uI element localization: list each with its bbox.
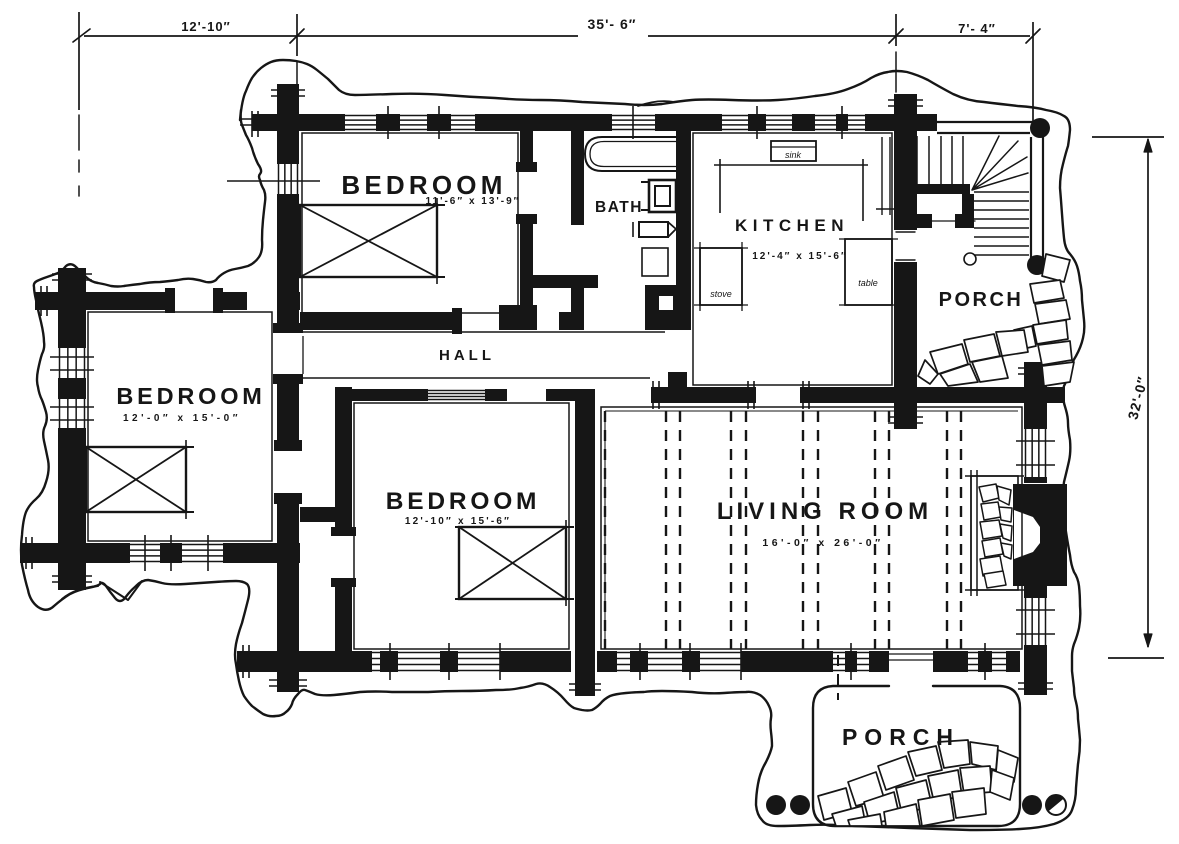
- svg-text:12'-10″: 12'-10″: [181, 19, 231, 34]
- svg-text:stove: stove: [710, 289, 732, 299]
- svg-text:PORCH: PORCH: [939, 289, 1024, 311]
- svg-text:PORCH: PORCH: [842, 724, 960, 750]
- svg-text:BEDROOM: BEDROOM: [116, 383, 265, 409]
- svg-text:LIVING ROOM: LIVING ROOM: [717, 498, 933, 525]
- svg-text:12'-0″ x 15'-0″: 12'-0″ x 15'-0″: [123, 413, 241, 424]
- svg-text:12'-4″ x 15'-6″: 12'-4″ x 15'-6″: [752, 251, 847, 262]
- svg-text:HALL: HALL: [439, 347, 495, 364]
- svg-text:BATH: BATH: [595, 199, 643, 216]
- svg-text:7'- 4″: 7'- 4″: [958, 21, 996, 36]
- svg-text:11'-6″ x 13'-9″: 11'-6″ x 13'-9″: [426, 196, 521, 207]
- svg-text:sink: sink: [785, 150, 802, 160]
- svg-text:BEDROOM: BEDROOM: [386, 488, 541, 515]
- svg-text:table: table: [858, 278, 878, 288]
- svg-text:12'-10″ x 15'-6″: 12'-10″ x 15'-6″: [405, 516, 511, 527]
- svg-text:KITCHEN: KITCHEN: [735, 216, 849, 235]
- svg-text:35'- 6″: 35'- 6″: [588, 16, 637, 32]
- svg-text:16'-0″ x 26'-0″: 16'-0″ x 26'-0″: [762, 537, 883, 549]
